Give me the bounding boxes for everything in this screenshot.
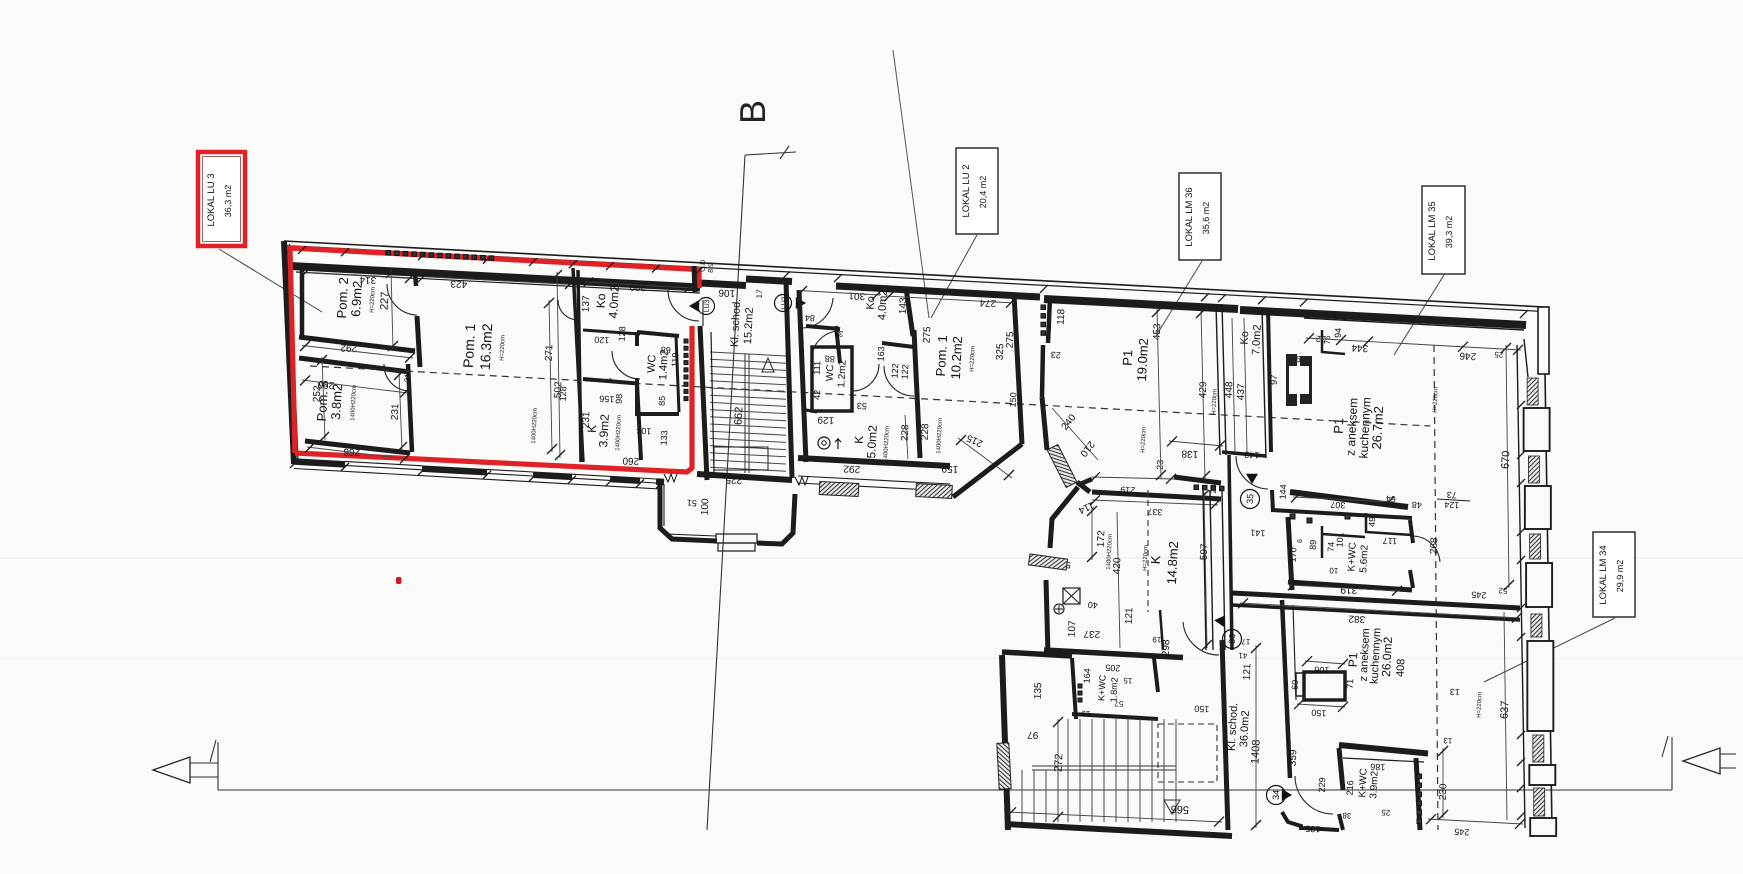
svg-text:122: 122 <box>900 364 911 380</box>
svg-text:17: 17 <box>755 289 764 299</box>
svg-text:16.3m2: 16.3m2 <box>477 323 495 371</box>
svg-text:100: 100 <box>700 498 712 516</box>
svg-text:170: 170 <box>1288 547 1299 563</box>
svg-text:5.6m2: 5.6m2 <box>1358 544 1370 573</box>
svg-text:H=220cm: H=220cm <box>368 287 376 313</box>
svg-text:163: 163 <box>876 346 887 362</box>
svg-text:H=220cm: H=220cm <box>1139 427 1147 453</box>
svg-text:164: 164 <box>1082 668 1093 684</box>
svg-text:290: 290 <box>317 379 335 391</box>
svg-text:K+WC: K+WC <box>1096 674 1107 701</box>
svg-text:89: 89 <box>1308 540 1319 551</box>
svg-text:35,6 m2: 35,6 m2 <box>1201 202 1211 235</box>
svg-text:LOKAL LU 3: LOKAL LU 3 <box>206 174 217 227</box>
svg-text:107: 107 <box>1067 620 1079 638</box>
svg-text:49: 49 <box>1367 517 1378 528</box>
svg-text:156: 156 <box>599 394 615 405</box>
svg-text:23: 23 <box>1051 350 1062 361</box>
svg-text:186: 186 <box>1370 762 1386 773</box>
svg-text:119: 119 <box>670 352 681 367</box>
svg-text:292: 292 <box>843 463 861 475</box>
svg-text:33: 33 <box>834 329 844 338</box>
svg-text:289: 289 <box>629 281 647 293</box>
svg-text:106: 106 <box>718 287 736 299</box>
svg-text:20,4 m2: 20,4 m2 <box>978 176 988 209</box>
svg-text:H=220cm: H=220cm <box>498 335 506 361</box>
svg-text:129: 129 <box>817 414 835 426</box>
svg-text:36: 36 <box>1227 634 1238 645</box>
svg-text:1.8m2: 1.8m2 <box>1108 677 1119 703</box>
svg-text:205: 205 <box>1105 663 1121 674</box>
svg-text:H=220cm: H=220cm <box>1431 387 1439 413</box>
svg-text:29,9 m2: 29,9 m2 <box>1615 560 1625 593</box>
svg-text:172: 172 <box>1096 530 1108 548</box>
svg-text:B: B <box>732 100 773 124</box>
svg-text:245: 245 <box>1454 827 1470 838</box>
svg-text:34: 34 <box>1271 790 1282 801</box>
svg-text:Ko: Ko <box>865 296 878 310</box>
svg-text:15.2m2: 15.2m2 <box>742 307 756 344</box>
svg-text:25: 25 <box>1381 808 1391 817</box>
svg-text:53: 53 <box>857 401 868 412</box>
svg-text:42: 42 <box>812 390 823 401</box>
svg-text:H=220cm: H=220cm <box>1210 389 1218 415</box>
svg-text:382: 382 <box>1348 613 1366 625</box>
svg-text:3.9m2: 3.9m2 <box>1368 770 1380 799</box>
svg-text:104: 104 <box>636 426 652 437</box>
svg-text:408: 408 <box>1395 658 1408 677</box>
svg-text:229: 229 <box>1317 777 1328 793</box>
svg-text:275: 275 <box>922 326 934 344</box>
svg-text:48: 48 <box>1412 500 1423 511</box>
svg-text:97: 97 <box>1027 729 1039 741</box>
svg-text:246: 246 <box>1459 350 1477 362</box>
svg-text:36,3 m2: 36,3 m2 <box>223 185 233 218</box>
svg-text:5.0m2: 5.0m2 <box>864 424 880 458</box>
svg-text:245: 245 <box>1471 590 1487 601</box>
svg-text:K+WC: K+WC <box>1346 542 1359 572</box>
svg-text:19: 19 <box>1081 709 1091 718</box>
svg-text:121: 121 <box>1124 607 1136 625</box>
svg-text:WC: WC <box>825 364 837 381</box>
svg-text:97: 97 <box>1269 375 1280 386</box>
svg-text:216: 216 <box>1345 780 1356 796</box>
svg-text:135: 135 <box>1305 824 1321 835</box>
svg-text:227: 227 <box>379 291 392 310</box>
svg-text:73: 73 <box>1447 490 1458 501</box>
svg-text:85: 85 <box>657 396 668 407</box>
svg-text:P1: P1 <box>1120 349 1136 366</box>
svg-text:566: 566 <box>1170 803 1189 816</box>
svg-text:98: 98 <box>614 394 625 405</box>
svg-text:LU3: LU3 <box>704 299 712 312</box>
svg-text:4.0m2: 4.0m2 <box>606 284 622 318</box>
svg-text:359: 359 <box>1288 749 1300 767</box>
svg-text:7.0m2: 7.0m2 <box>1250 324 1264 355</box>
svg-text:15: 15 <box>1123 676 1133 685</box>
svg-text:670: 670 <box>1500 450 1513 469</box>
svg-text:117: 117 <box>1382 536 1397 547</box>
svg-text:429: 429 <box>1198 381 1210 399</box>
svg-text:274: 274 <box>979 297 997 309</box>
svg-text:662: 662 <box>733 406 746 425</box>
svg-text:597: 597 <box>1199 543 1211 561</box>
svg-text:135: 135 <box>1033 682 1045 700</box>
svg-text:23: 23 <box>1155 460 1166 471</box>
svg-text:88: 88 <box>825 354 836 365</box>
svg-text:57: 57 <box>1114 699 1124 708</box>
svg-text:19: 19 <box>1152 635 1162 644</box>
svg-text:LOKAL LM 36: LOKAL LM 36 <box>1184 187 1195 246</box>
svg-text:106: 106 <box>1314 665 1330 676</box>
svg-text:325: 325 <box>995 343 1007 361</box>
svg-text:420: 420 <box>1112 557 1124 575</box>
svg-text:35: 35 <box>1245 494 1256 505</box>
svg-text:26.0m2: 26.0m2 <box>1379 636 1395 677</box>
svg-text:122: 122 <box>890 363 901 379</box>
svg-text:36.0m2: 36.0m2 <box>1238 710 1252 747</box>
svg-text:40: 40 <box>1088 600 1099 611</box>
svg-text:133: 133 <box>659 430 670 446</box>
svg-text:94: 94 <box>1333 328 1344 339</box>
svg-text:H=220cm: H=220cm <box>968 346 976 372</box>
svg-text:6.9m2: 6.9m2 <box>348 280 365 317</box>
svg-text:26.7m2: 26.7m2 <box>1369 406 1386 450</box>
svg-text:141: 141 <box>1250 528 1266 539</box>
svg-text:307: 307 <box>1330 500 1346 511</box>
svg-text:5: 5 <box>607 378 614 382</box>
svg-text:272: 272 <box>1053 753 1066 772</box>
svg-text:6: 6 <box>1297 539 1304 543</box>
svg-text:LOKAL LU 2: LOKAL LU 2 <box>961 165 972 218</box>
svg-text:17: 17 <box>1241 637 1251 646</box>
svg-text:H=220cm: H=220cm <box>1475 692 1483 718</box>
svg-text:51: 51 <box>687 498 698 509</box>
svg-text:H=220cm: H=220cm <box>1141 545 1149 571</box>
svg-text:225: 225 <box>725 474 743 486</box>
svg-text:41: 41 <box>1238 651 1248 660</box>
svg-text:Kl. schod.: Kl. schod. <box>729 298 744 347</box>
svg-text:19.0m2: 19.0m2 <box>1134 338 1151 382</box>
svg-text:3.9m2: 3.9m2 <box>596 413 612 447</box>
svg-text:128: 128 <box>558 386 569 402</box>
svg-text:150: 150 <box>1311 708 1327 719</box>
svg-text:237: 237 <box>1083 628 1101 640</box>
svg-text:260: 260 <box>622 455 640 467</box>
svg-text:K: K <box>1148 555 1163 565</box>
svg-text:111: 111 <box>812 361 823 375</box>
svg-text:38: 38 <box>1342 811 1352 820</box>
svg-text:10: 10 <box>1329 566 1339 575</box>
svg-text:337: 337 <box>1147 507 1163 518</box>
svg-text:301: 301 <box>848 290 866 302</box>
svg-text:128: 128 <box>617 326 628 342</box>
svg-text:71: 71 <box>1345 679 1356 690</box>
svg-text:23: 23 <box>1209 484 1218 494</box>
svg-text:14.8m2: 14.8m2 <box>1164 541 1181 585</box>
svg-text:143: 143 <box>1244 450 1260 461</box>
svg-text:150: 150 <box>1008 392 1019 408</box>
svg-text:150: 150 <box>1194 704 1210 715</box>
svg-text:10.2m2: 10.2m2 <box>948 336 965 380</box>
svg-text:423: 423 <box>450 278 468 290</box>
svg-text:LOKAL LM 35: LOKAL LM 35 <box>1427 201 1438 260</box>
svg-text:137: 137 <box>581 295 593 313</box>
svg-text:C.D: C.D <box>700 260 708 272</box>
svg-text:144: 144 <box>1278 484 1289 500</box>
svg-text:231: 231 <box>390 403 402 421</box>
svg-text:LOKAL LM 34: LOKAL LM 34 <box>1598 545 1609 604</box>
svg-text:39,3 m2: 39,3 m2 <box>1444 216 1454 249</box>
svg-text:84: 84 <box>805 313 816 324</box>
svg-text:231: 231 <box>581 411 593 429</box>
svg-text:118: 118 <box>1056 308 1068 325</box>
svg-text:WC: WC <box>646 354 659 373</box>
svg-text:120: 120 <box>594 335 610 346</box>
svg-text:8.9: 8.9 <box>708 263 716 273</box>
svg-text:52: 52 <box>1498 586 1508 595</box>
svg-text:LU2: LU2 <box>781 296 789 309</box>
svg-text:138: 138 <box>1181 448 1199 460</box>
svg-text:1.2m2: 1.2m2 <box>836 359 848 388</box>
svg-text:319: 319 <box>1340 584 1358 596</box>
svg-text:21: 21 <box>403 373 412 383</box>
svg-text:121: 121 <box>1242 663 1254 681</box>
svg-text:Pom. 1: Pom. 1 <box>460 323 478 368</box>
svg-text:13: 13 <box>1443 736 1453 745</box>
svg-text:13: 13 <box>1450 687 1461 698</box>
svg-text:230: 230 <box>1438 783 1450 801</box>
svg-text:268: 268 <box>1429 537 1441 555</box>
svg-text:228: 228 <box>920 423 932 441</box>
